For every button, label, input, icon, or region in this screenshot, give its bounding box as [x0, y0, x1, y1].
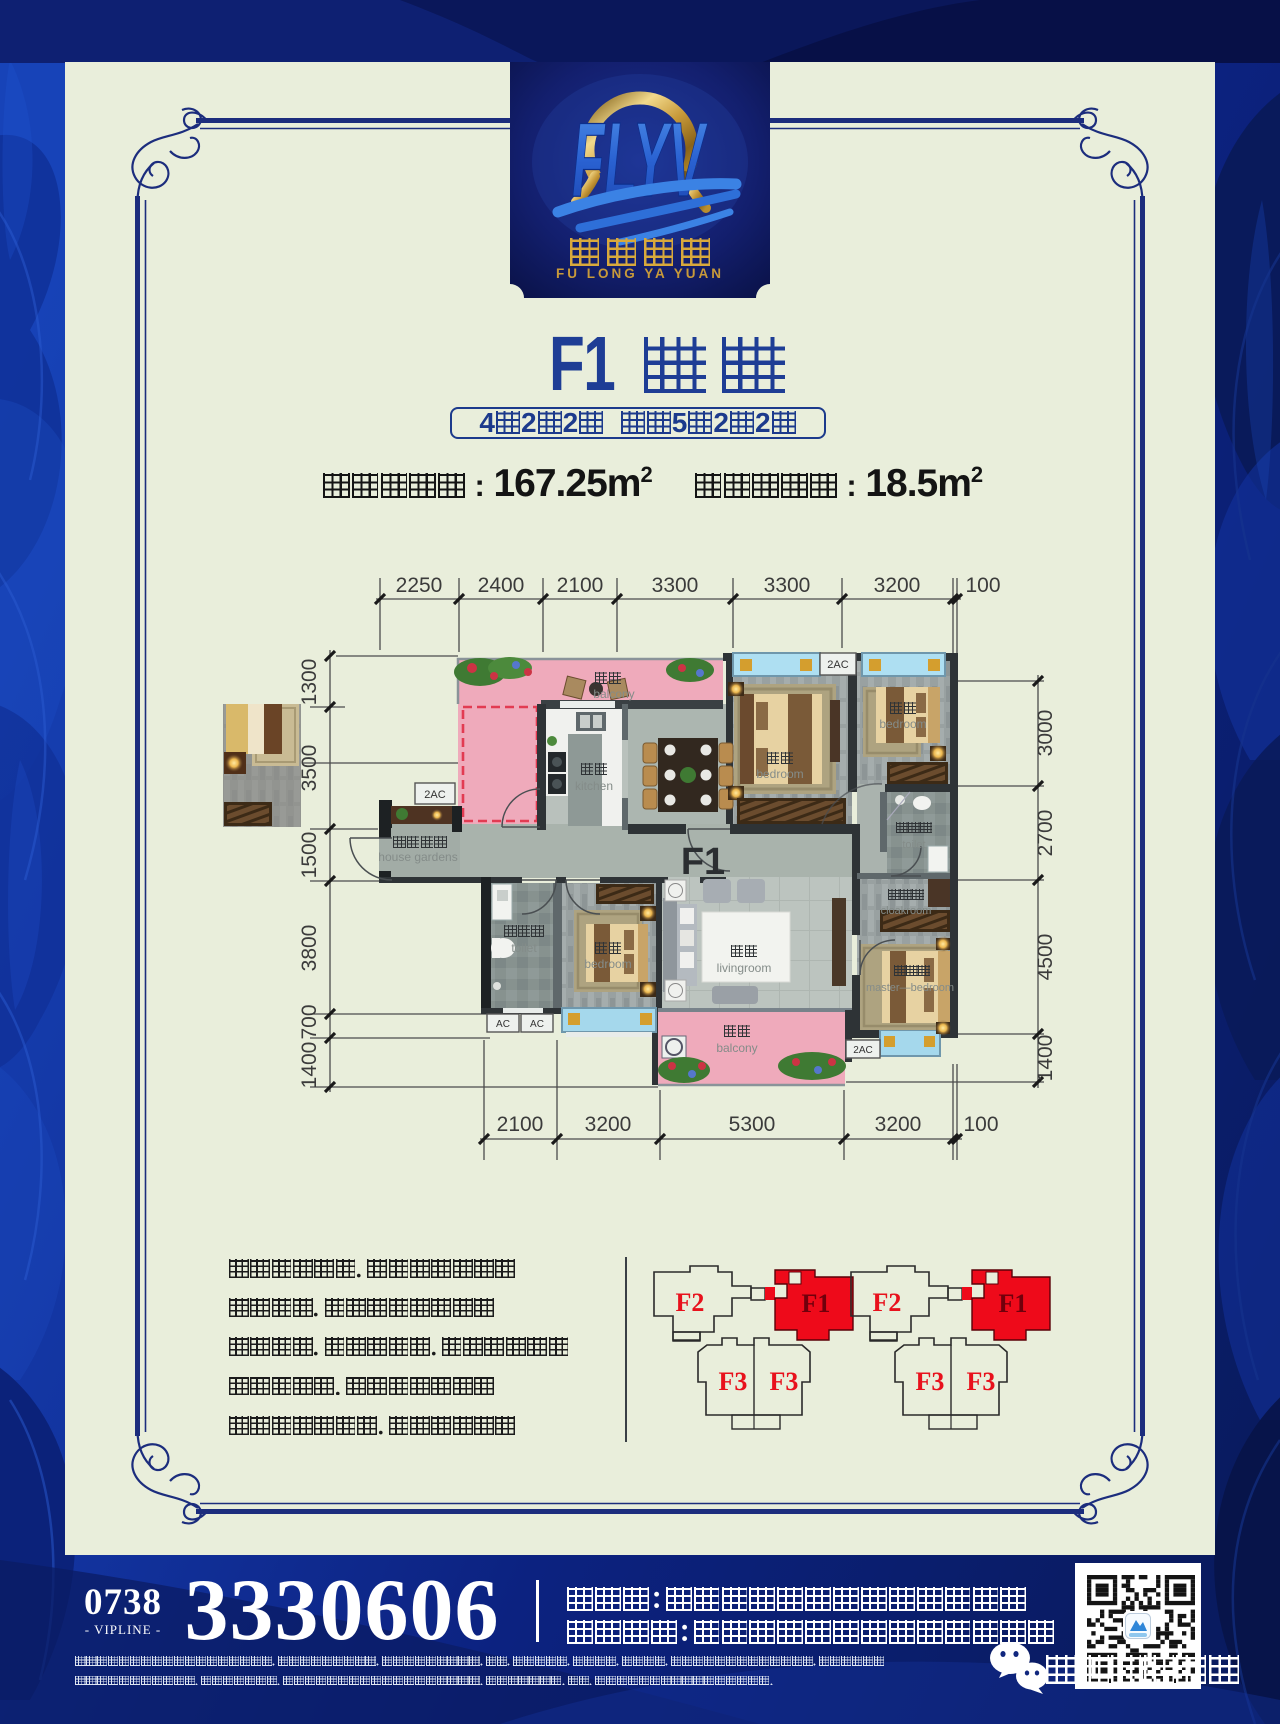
- svg-text:5300: 5300: [729, 1113, 776, 1136]
- svg-text:balcony: balcony: [593, 687, 634, 701]
- svg-text:AC: AC: [496, 1019, 510, 1030]
- svg-text:3200: 3200: [874, 574, 921, 597]
- svg-text:2400: 2400: [478, 574, 525, 597]
- svg-text:balcony: balcony: [716, 1041, 757, 1055]
- svg-text:2100: 2100: [557, 574, 604, 597]
- svg-text:bedroom: bedroom: [879, 717, 926, 731]
- svg-text:3300: 3300: [652, 574, 699, 597]
- svg-text:bedroom: bedroom: [756, 767, 803, 781]
- svg-text:3200: 3200: [585, 1113, 632, 1136]
- svg-text:1500: 1500: [298, 832, 321, 879]
- svg-text:F3: F3: [770, 1367, 799, 1396]
- svg-text:3800: 3800: [298, 925, 321, 972]
- svg-text:cloakroom: cloakroom: [881, 905, 932, 917]
- svg-text:toilet: toilet: [902, 839, 925, 851]
- svg-text:bedroom: bedroom: [584, 957, 631, 971]
- svg-text:2700: 2700: [1034, 810, 1057, 857]
- svg-text:3500: 3500: [298, 745, 321, 792]
- svg-text:F1: F1: [681, 841, 725, 883]
- svg-text:3300: 3300: [764, 574, 811, 597]
- svg-text:master—bedroom: master—bedroom: [866, 982, 954, 994]
- svg-text:1400: 1400: [1034, 1035, 1057, 1082]
- svg-text:3200: 3200: [875, 1113, 922, 1136]
- svg-text:100: 100: [965, 574, 1000, 597]
- svg-text:AC: AC: [530, 1019, 544, 1030]
- svg-text:F3: F3: [719, 1367, 748, 1396]
- svg-text:livingroom: livingroom: [717, 961, 772, 975]
- svg-text:100: 100: [963, 1113, 998, 1136]
- svg-text:700: 700: [298, 1004, 321, 1039]
- svg-text:F2: F2: [676, 1288, 705, 1317]
- svg-text:F1: F1: [802, 1289, 831, 1318]
- svg-text:2AC: 2AC: [853, 1045, 872, 1056]
- svg-text:2AC: 2AC: [424, 789, 445, 801]
- svg-text:kitchen: kitchen: [575, 779, 613, 793]
- svg-text:1300: 1300: [298, 659, 321, 706]
- svg-text:1400: 1400: [298, 1042, 321, 1089]
- svg-text:house gardens: house gardens: [378, 850, 457, 864]
- svg-text:4500: 4500: [1034, 934, 1057, 981]
- svg-text:2AC: 2AC: [827, 659, 848, 671]
- svg-text:2100: 2100: [497, 1113, 544, 1136]
- svg-text:2250: 2250: [396, 574, 443, 597]
- svg-text:3000: 3000: [1034, 710, 1057, 757]
